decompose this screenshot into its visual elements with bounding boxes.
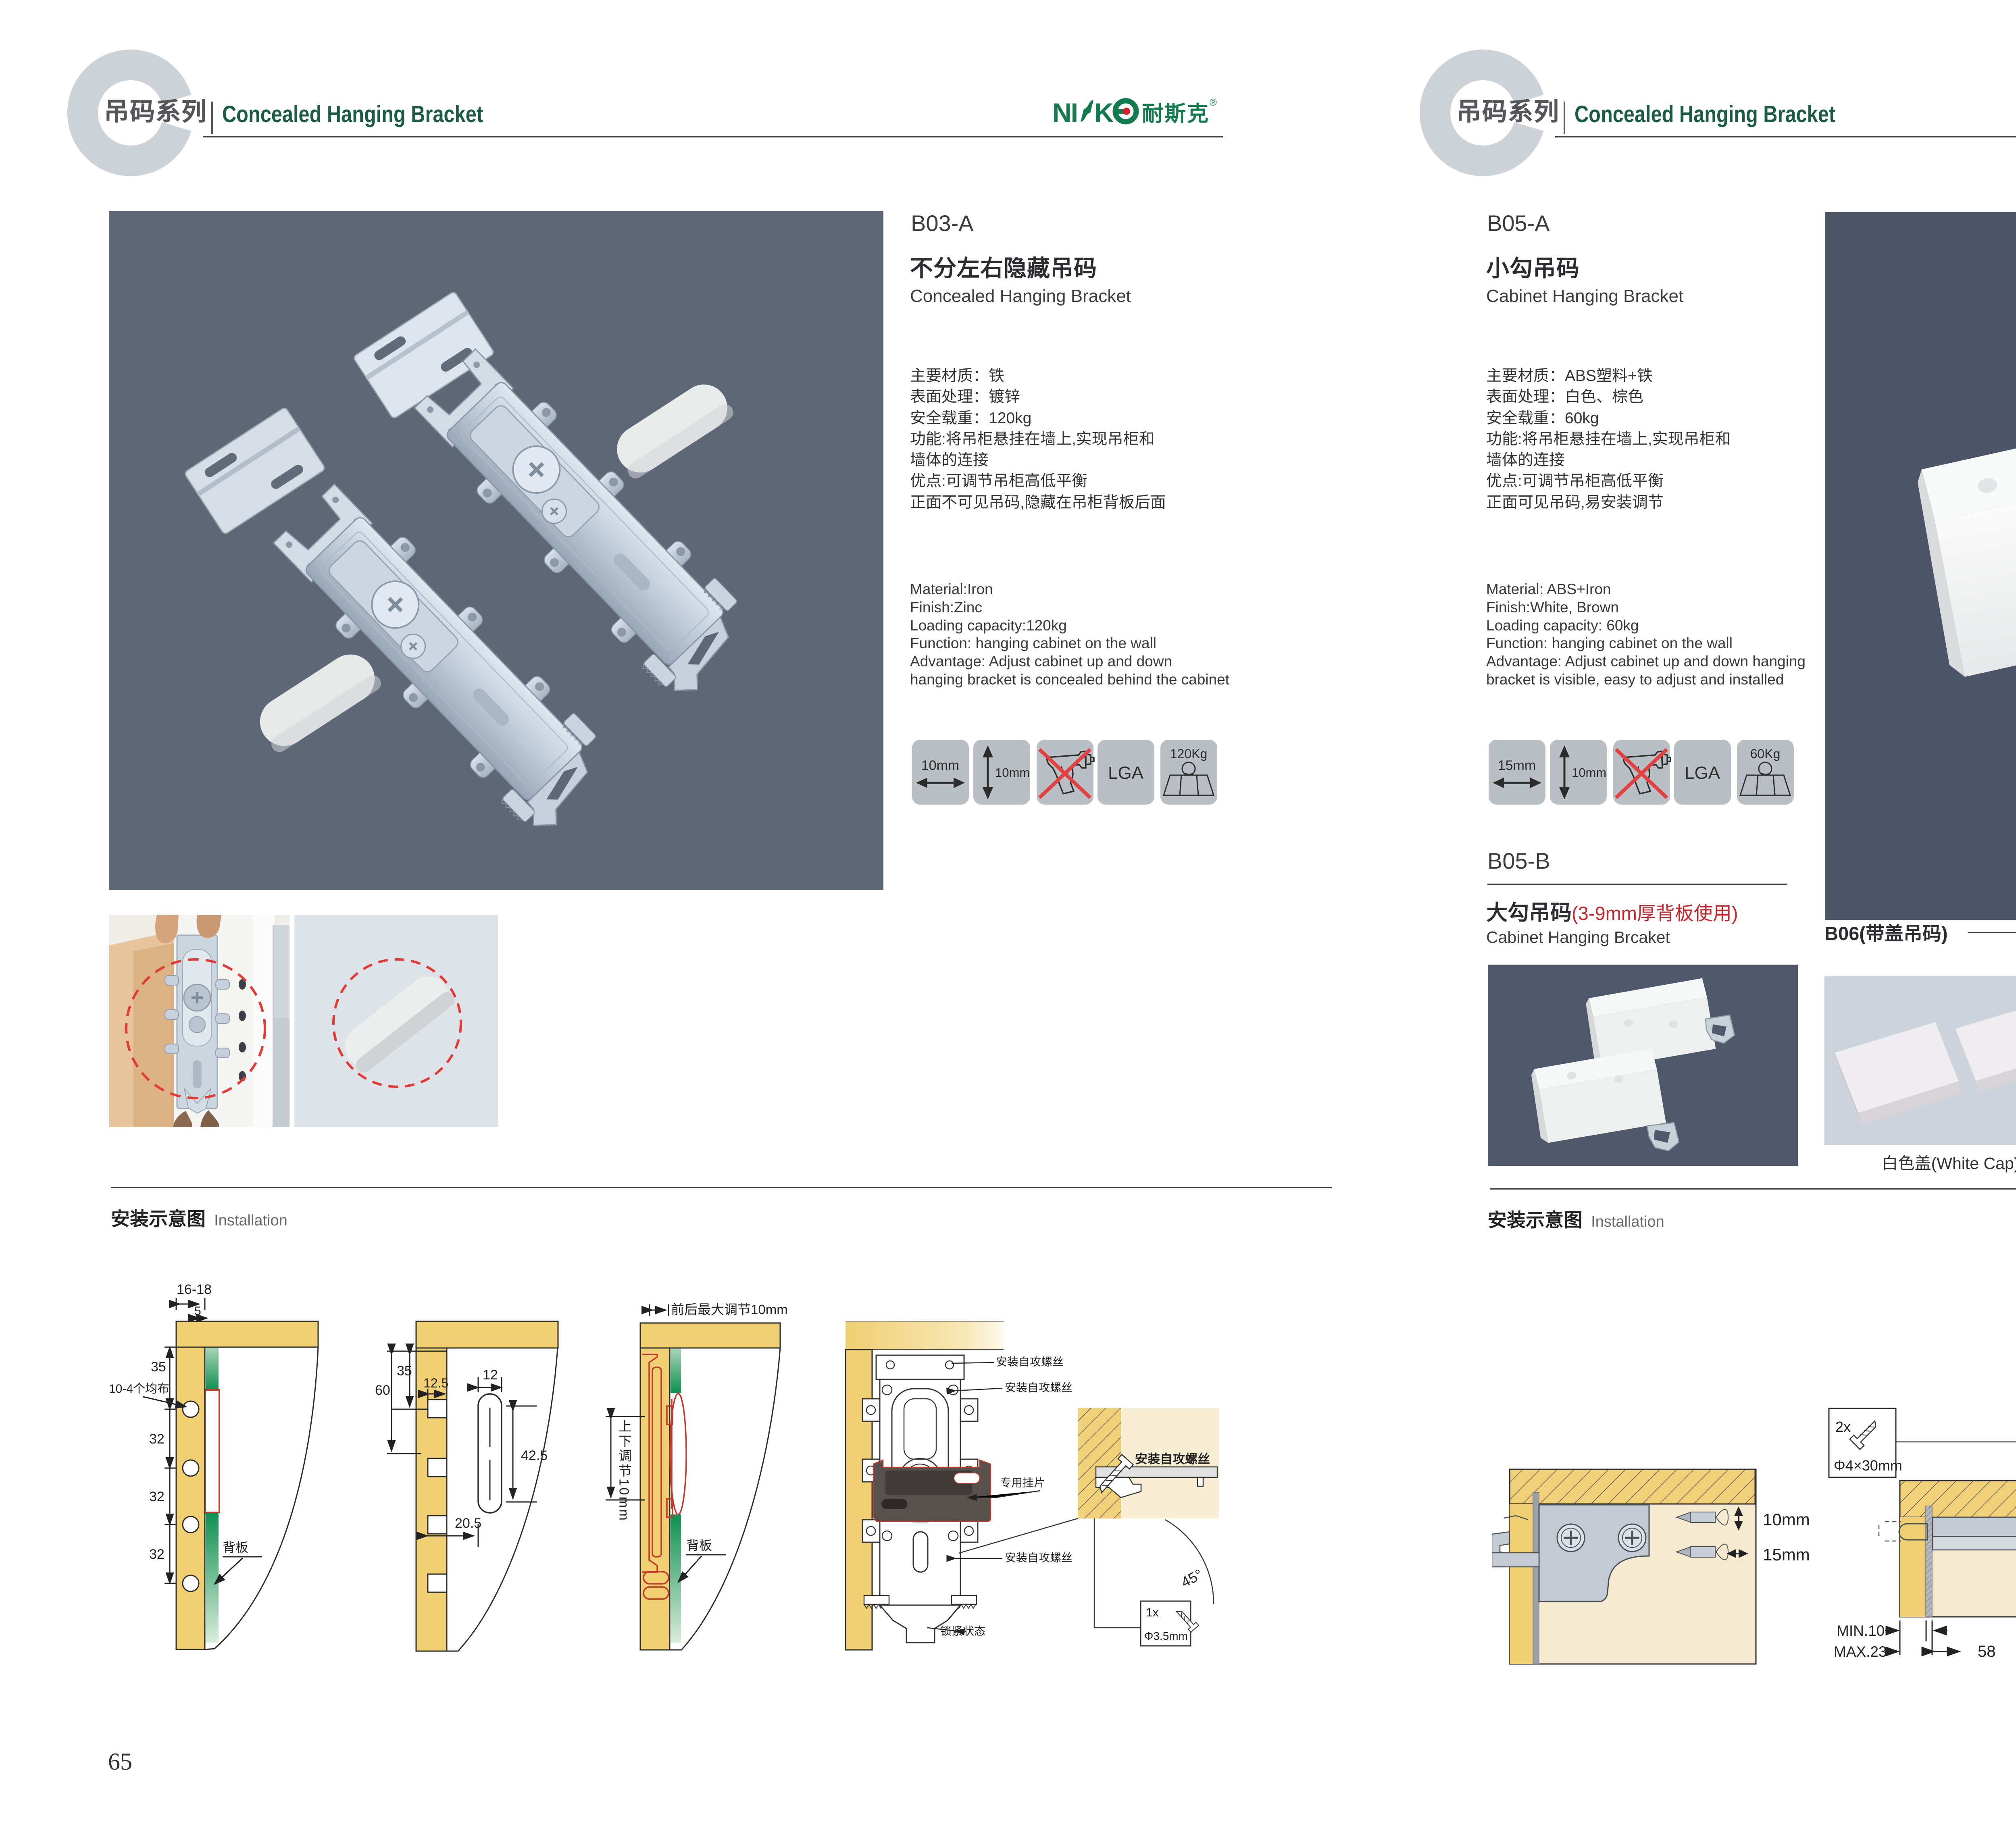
- svg-text:前后最大调节10mm: 前后最大调节10mm: [671, 1302, 788, 1317]
- svg-text:K: K: [1094, 98, 1114, 127]
- svg-text:42.5: 42.5: [521, 1448, 548, 1463]
- svg-text:60: 60: [375, 1383, 390, 1398]
- svg-text:锁紧状态: 锁紧状态: [940, 1625, 985, 1637]
- svg-text:15mm: 15mm: [1763, 1545, 1810, 1564]
- svg-text:5: 5: [194, 1304, 201, 1318]
- svg-text:安装自攻螺丝: 安装自攻螺丝: [996, 1356, 1064, 1368]
- svg-text:1x: 1x: [1146, 1606, 1159, 1619]
- svg-text:背板: 背板: [223, 1540, 248, 1555]
- svg-text:®: ®: [1210, 97, 1217, 108]
- svg-text:32: 32: [149, 1547, 165, 1562]
- svg-text:10-4个均布: 10-4个均布: [109, 1382, 169, 1396]
- svg-text:MIN.10: MIN.10: [1837, 1622, 1885, 1639]
- svg-text:15mm: 15mm: [1498, 758, 1536, 773]
- svg-text:12: 12: [483, 1367, 498, 1383]
- svg-text:120Kg: 120Kg: [1170, 747, 1208, 761]
- svg-text:NI: NI: [1052, 98, 1077, 127]
- svg-text:安装自攻螺丝: 安装自攻螺丝: [1005, 1552, 1073, 1564]
- svg-text:16-18: 16-18: [177, 1282, 212, 1297]
- svg-text:60Kg: 60Kg: [1750, 747, 1781, 761]
- svg-text:上下调节10mm: 上下调节10mm: [617, 1419, 632, 1522]
- svg-text:LGA: LGA: [1108, 763, 1144, 783]
- svg-text:10mm: 10mm: [995, 765, 1030, 780]
- svg-text:Φ3.5mm: Φ3.5mm: [1144, 1630, 1188, 1642]
- svg-text:45°: 45°: [1178, 1566, 1205, 1591]
- svg-text:专用挂片: 专用挂片: [1000, 1477, 1045, 1489]
- svg-text:背板: 背板: [686, 1538, 712, 1553]
- svg-text:10mm: 10mm: [1572, 765, 1606, 780]
- svg-text:32: 32: [149, 1431, 165, 1447]
- svg-text:10mm: 10mm: [921, 758, 959, 773]
- svg-text:58: 58: [1978, 1643, 1996, 1660]
- svg-text:10mm: 10mm: [1763, 1510, 1810, 1529]
- svg-text:35: 35: [151, 1359, 166, 1375]
- svg-text:20.5: 20.5: [455, 1516, 481, 1531]
- svg-text:35: 35: [397, 1363, 412, 1379]
- svg-text:安装自攻螺丝: 安装自攻螺丝: [1135, 1452, 1210, 1466]
- svg-text:MAX.23: MAX.23: [1834, 1643, 1887, 1660]
- svg-text:耐斯克: 耐斯克: [1142, 97, 1210, 127]
- svg-text:32: 32: [149, 1489, 165, 1504]
- svg-text:2x: 2x: [1835, 1419, 1851, 1435]
- svg-text:LGA: LGA: [1685, 763, 1720, 783]
- svg-text:12.5: 12.5: [423, 1376, 448, 1390]
- svg-text:Φ4×30mm: Φ4×30mm: [1834, 1457, 1902, 1474]
- svg-text:安装自攻螺丝: 安装自攻螺丝: [1005, 1381, 1073, 1394]
